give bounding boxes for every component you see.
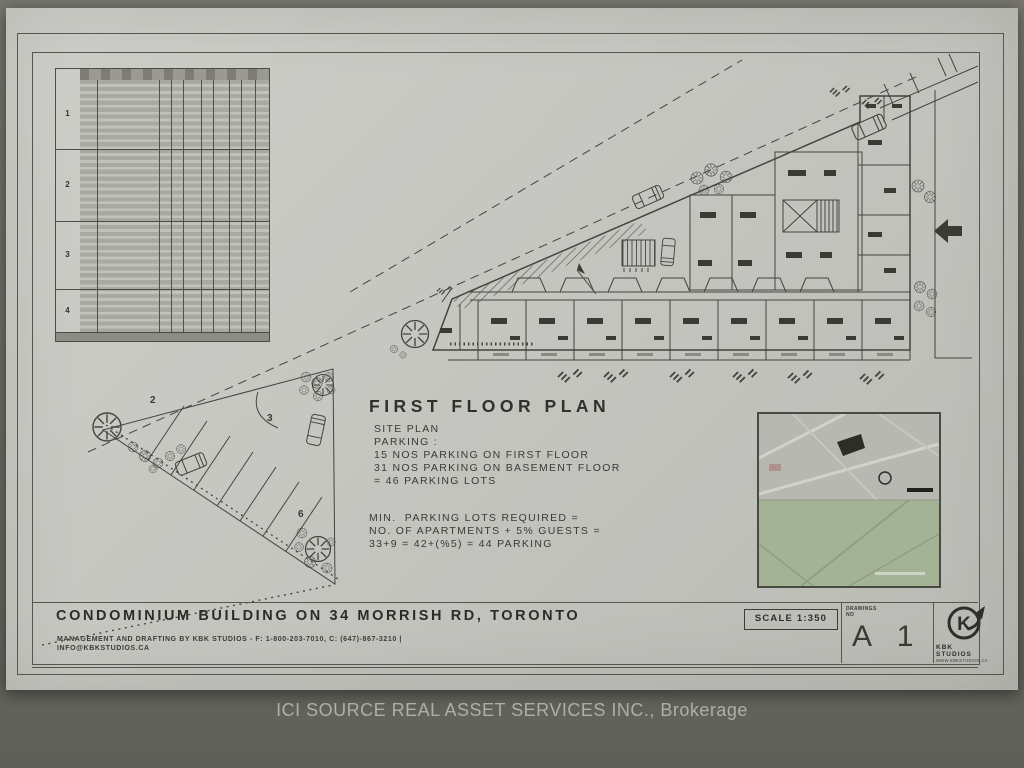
watermark-text: ICI SOURCE REAL ASSET SERVICES INC., Bro… [0, 700, 1024, 721]
parking-calc-notes: MIN. PARKING LOTS REQUIRED = NO. OF APAR… [369, 512, 601, 551]
parking-area-label-2: 2 [150, 395, 156, 406]
studio-url: WWW.KBKSTUDIOS.CA [936, 658, 988, 663]
parking-area-label-3: 3 [267, 413, 273, 424]
entrance-arrow-icon [934, 219, 962, 243]
kbk-logo-icon: K [934, 602, 1006, 646]
drawing-no-box: DRAWINGS NO A 1 [846, 606, 922, 654]
svg-text:K: K [957, 614, 971, 635]
credits-line-2: INFO@KBKSTUDIOS.CA [57, 645, 402, 654]
location-map-inset [757, 412, 941, 588]
project-title: CONDOMINIUM BUILDING ON 34 MORRISH RD, T… [56, 608, 580, 624]
credits: MANAGEMENT AND DRAFTING BY KBK STUDIOS -… [57, 636, 402, 653]
studio-name: KBK STUDIOS WWW.KBKSTUDIOS.CA [936, 644, 988, 663]
building-outline [433, 96, 910, 350]
photo-backdrop: 1 2 3 4 [0, 0, 1024, 768]
furniture-marks [440, 104, 904, 340]
parking-triangle [42, 369, 338, 645]
first-floor-plan-title: FIRST FLOOR PLAN [369, 396, 610, 417]
road-centerlines [88, 54, 978, 452]
parking-area-label-6: 6 [298, 509, 304, 520]
building-interior [448, 90, 972, 360]
drawing-no-value: A 1 [852, 620, 922, 654]
scale-box: SCALE 1:350 [744, 609, 838, 630]
credits-line-1: MANAGEMENT AND DRAFTING BY KBK STUDIOS -… [57, 636, 402, 645]
location-map-graphic [759, 414, 939, 586]
site-plan-notes: SITE PLAN PARKING : 15 NOS PARKING ON FI… [374, 423, 621, 488]
